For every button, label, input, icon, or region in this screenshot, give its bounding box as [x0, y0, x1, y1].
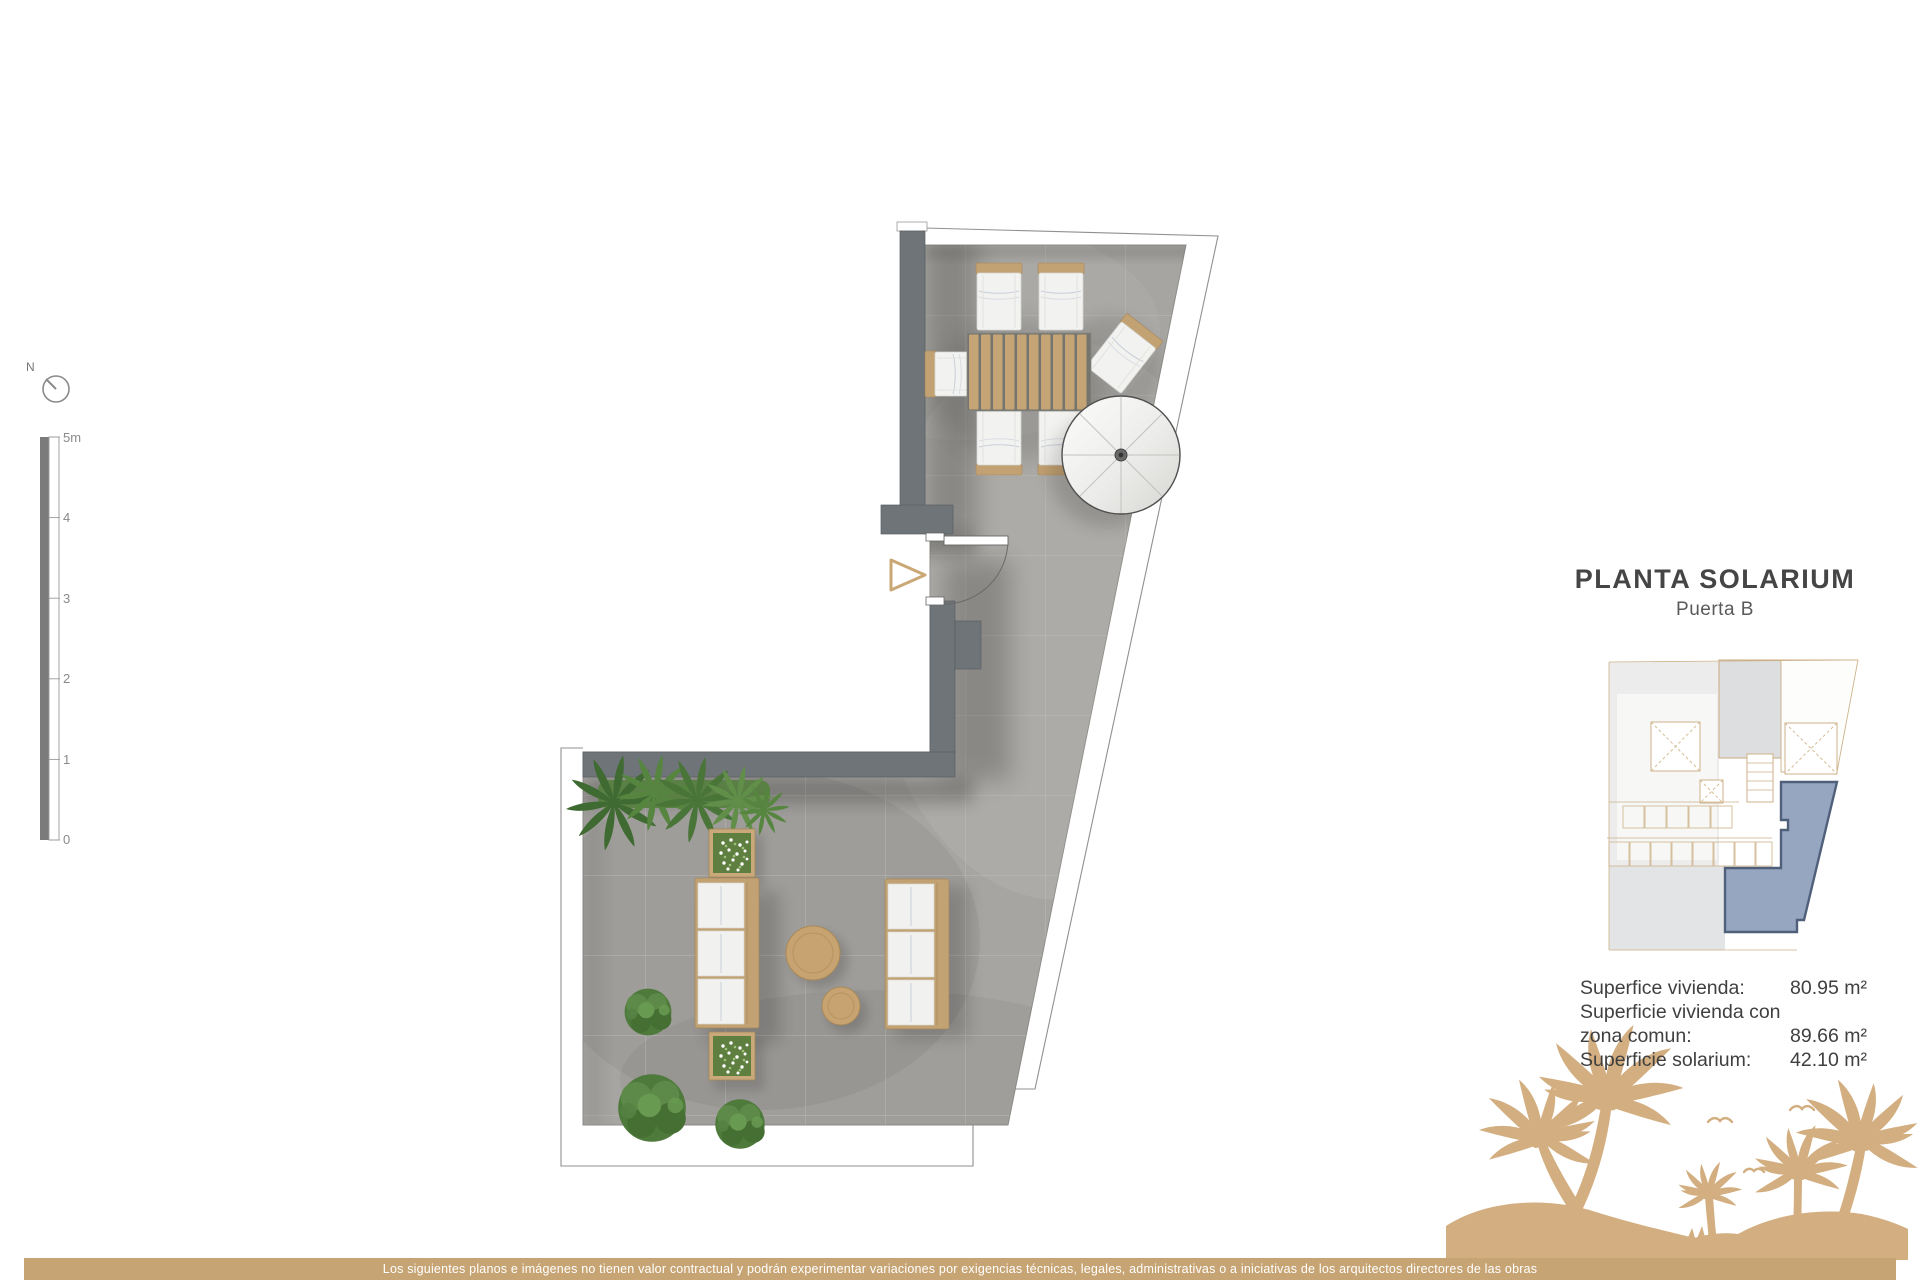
door-jamb: [926, 533, 944, 541]
area-label: Superficie solarium:: [1580, 1048, 1790, 1072]
shrub: [618, 1074, 686, 1142]
shrub: [715, 1099, 764, 1148]
dining-chair: [976, 263, 1022, 330]
sun-lounger: [695, 878, 759, 1028]
page-title: PLANTA SOLARIUM: [1540, 564, 1890, 595]
north-indicator-icon: [43, 376, 69, 402]
dining-chair: [1038, 263, 1084, 330]
wall: [881, 505, 953, 534]
wall: [583, 752, 955, 777]
planter-box: [709, 1032, 755, 1080]
key-plan: [1607, 660, 1858, 950]
area-label: Superficie vivienda con: [1580, 1000, 1790, 1024]
dining-table: [967, 333, 1091, 411]
area-label: Superfice vivienda:: [1580, 976, 1790, 1000]
shrub: [625, 989, 672, 1036]
door-jamb: [926, 597, 944, 605]
wall: [900, 231, 925, 507]
wall: [955, 621, 981, 669]
area-value: 80.95 m²: [1790, 976, 1910, 1000]
disclaimer-text: Los siguientes planos e imágenes no tien…: [383, 1262, 1537, 1276]
entry-arrow-icon: [891, 560, 925, 590]
scale-bar: [40, 437, 60, 840]
side-table: [786, 926, 840, 980]
scale-tick-label: 5m: [63, 430, 103, 445]
dining-chair: [976, 408, 1022, 475]
area-label: zona comun:: [1580, 1024, 1790, 1048]
north-label: N: [26, 360, 35, 374]
scale-tick-label: 2: [63, 671, 103, 686]
wall: [930, 601, 955, 754]
walls: [583, 231, 981, 777]
door-leaf: [944, 536, 1008, 545]
side-table: [822, 987, 860, 1025]
scale-tick-label: 4: [63, 510, 103, 525]
disclaimer-bar: Los siguientes planos e imágenes no tien…: [24, 1258, 1896, 1280]
scale-tick-label: 1: [63, 752, 103, 767]
floor-plan-drawing: [0, 0, 1920, 1280]
planter-box: [709, 829, 755, 877]
scale-tick-label: 3: [63, 591, 103, 606]
scale-tick-label: 0: [63, 832, 103, 847]
area-value: 89.66 m²: [1790, 1024, 1910, 1048]
key-plan-highlighted-unit: [1725, 782, 1837, 932]
sun-lounger: [885, 879, 949, 1029]
parapet-cap: [897, 222, 927, 231]
page: PLANTA SOLARIUM Puerta B Superfice vivie…: [0, 0, 1920, 1280]
page-subtitle: Puerta B: [1540, 599, 1890, 621]
area-value: 42.10 m²: [1790, 1048, 1910, 1072]
